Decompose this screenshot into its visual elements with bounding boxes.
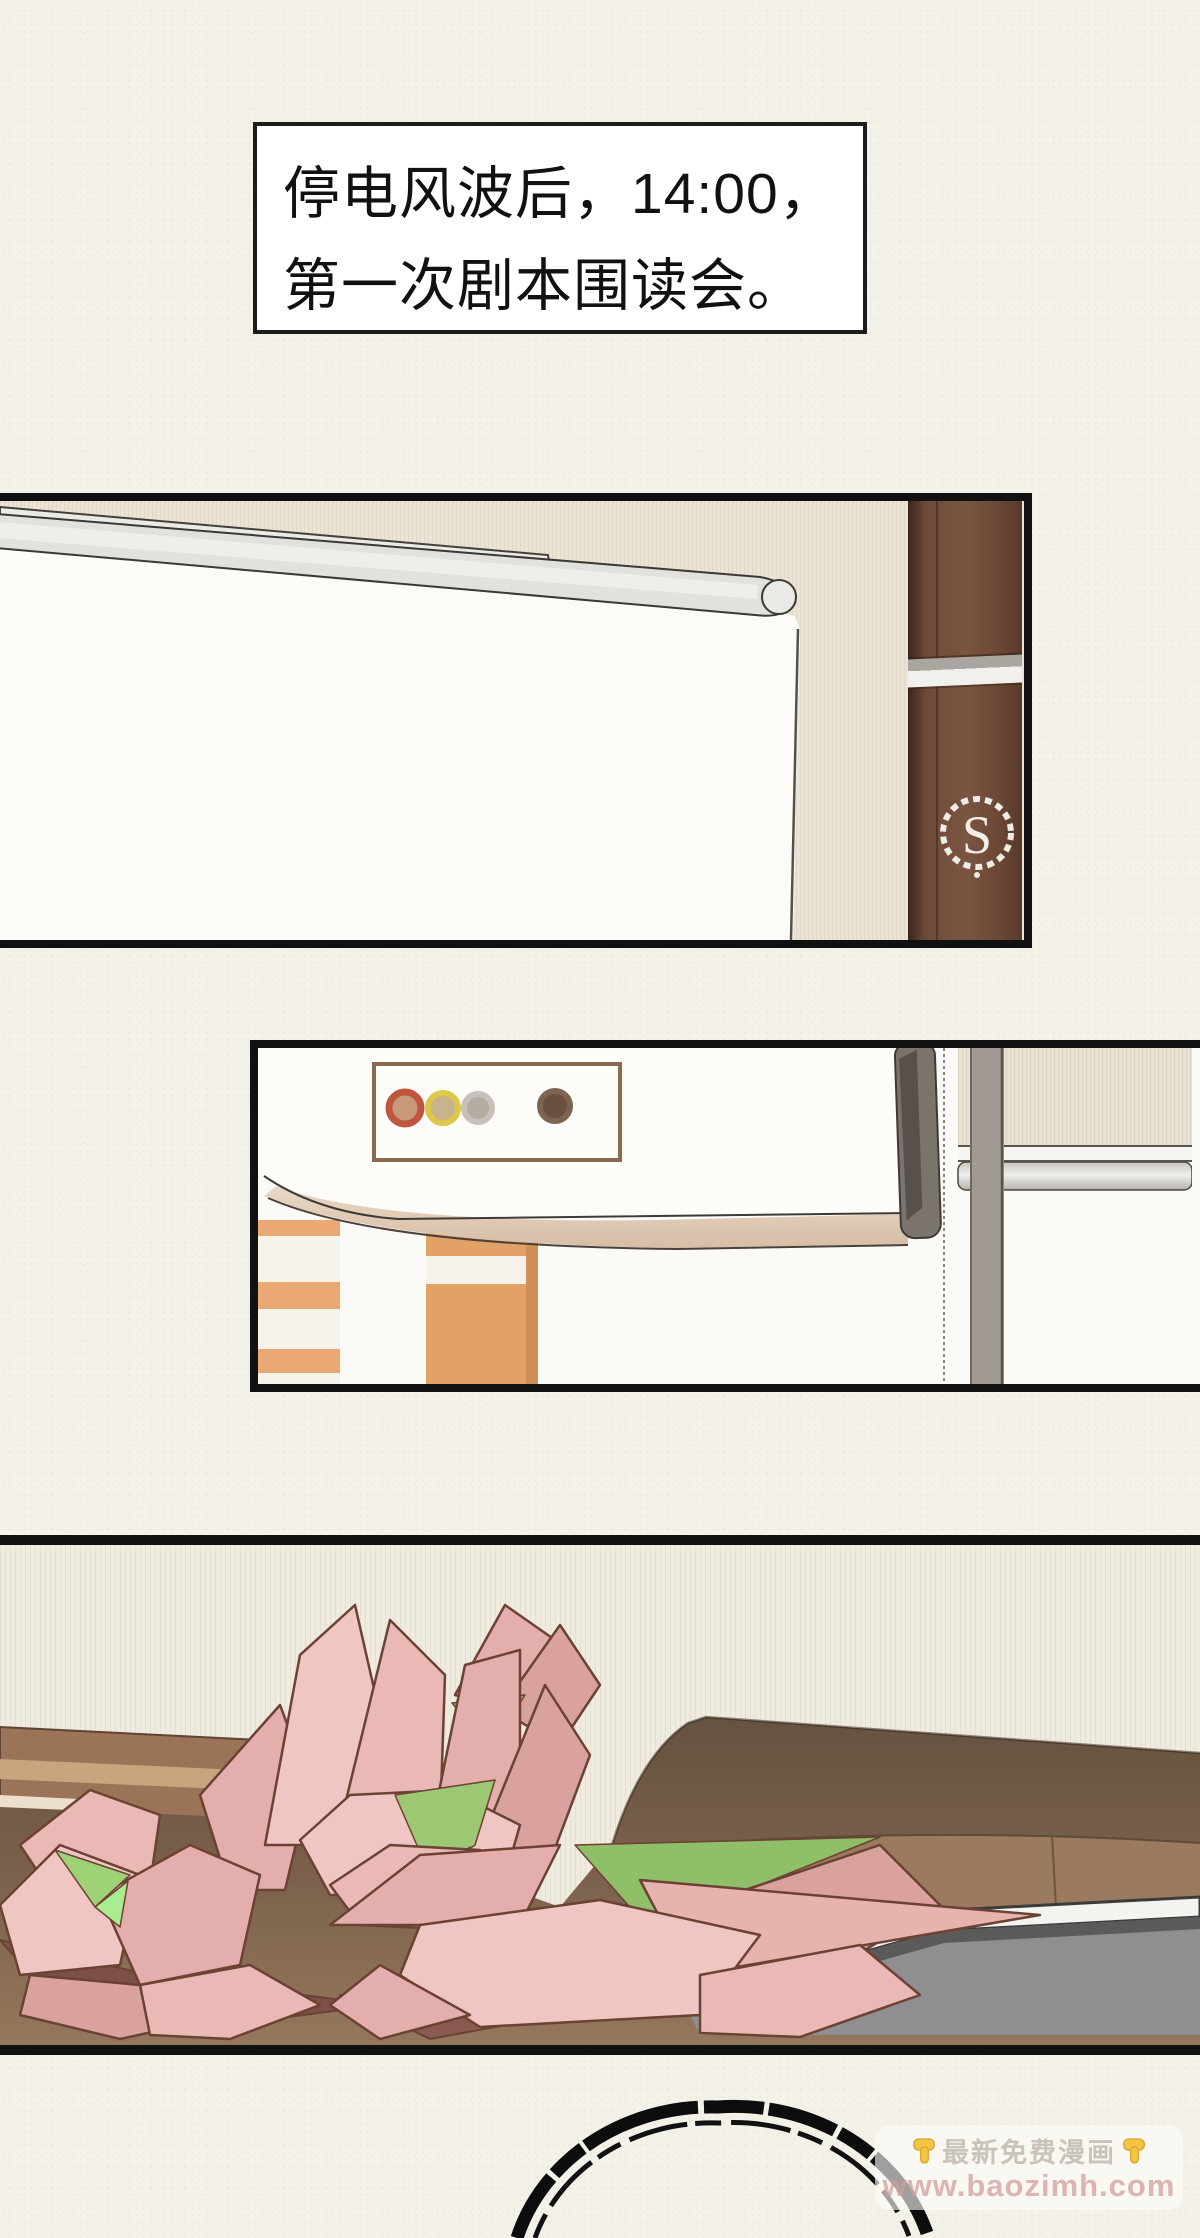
sketch-circle [505, 2093, 935, 2238]
mount-bracket [894, 1048, 941, 1239]
indicator-light-red [389, 1092, 421, 1124]
projector-scene [258, 1048, 1192, 1384]
hand-down-icon [1122, 2136, 1146, 2166]
tube-end-cap [762, 580, 796, 614]
logo-dot [974, 872, 980, 878]
watermark-text: 最新免费漫画 [942, 2131, 1116, 2170]
indicator-light-brown [540, 1091, 570, 1121]
comic-page: { "page": { "width": 1200, "height": 223… [0, 0, 1200, 2238]
watermark: 最新免费漫画 www.baozimh.com [875, 2125, 1183, 2210]
flowers-scene [0, 1545, 1200, 2045]
hotel-logo: S [936, 787, 1018, 887]
projection-screen [0, 501, 1024, 940]
caption-line-2: 第一次剧本围读会。 [283, 240, 863, 332]
caption-line-1: 停电风波后，14:00， [283, 148, 863, 240]
logo-letter: S [962, 805, 992, 865]
panel-projector [250, 1040, 1200, 1392]
indicator-light-gray [464, 1094, 492, 1122]
indicator-light-yellow [428, 1093, 458, 1123]
watermark-link[interactable]: www.baozimh.com [883, 2168, 1176, 2204]
watermark-row: 最新免费漫画 [912, 2131, 1146, 2170]
panel-meeting-room: S [0, 493, 1032, 948]
caption-box: 停电风波后，14:00， 第一次剧本围读会。 [253, 122, 867, 334]
hand-down-icon [912, 2136, 936, 2166]
mount-post [970, 1048, 1004, 1384]
pillar: S [908, 501, 1022, 940]
panel-flowers-table [0, 1535, 1200, 2055]
pillar-silver-band [908, 655, 1022, 688]
